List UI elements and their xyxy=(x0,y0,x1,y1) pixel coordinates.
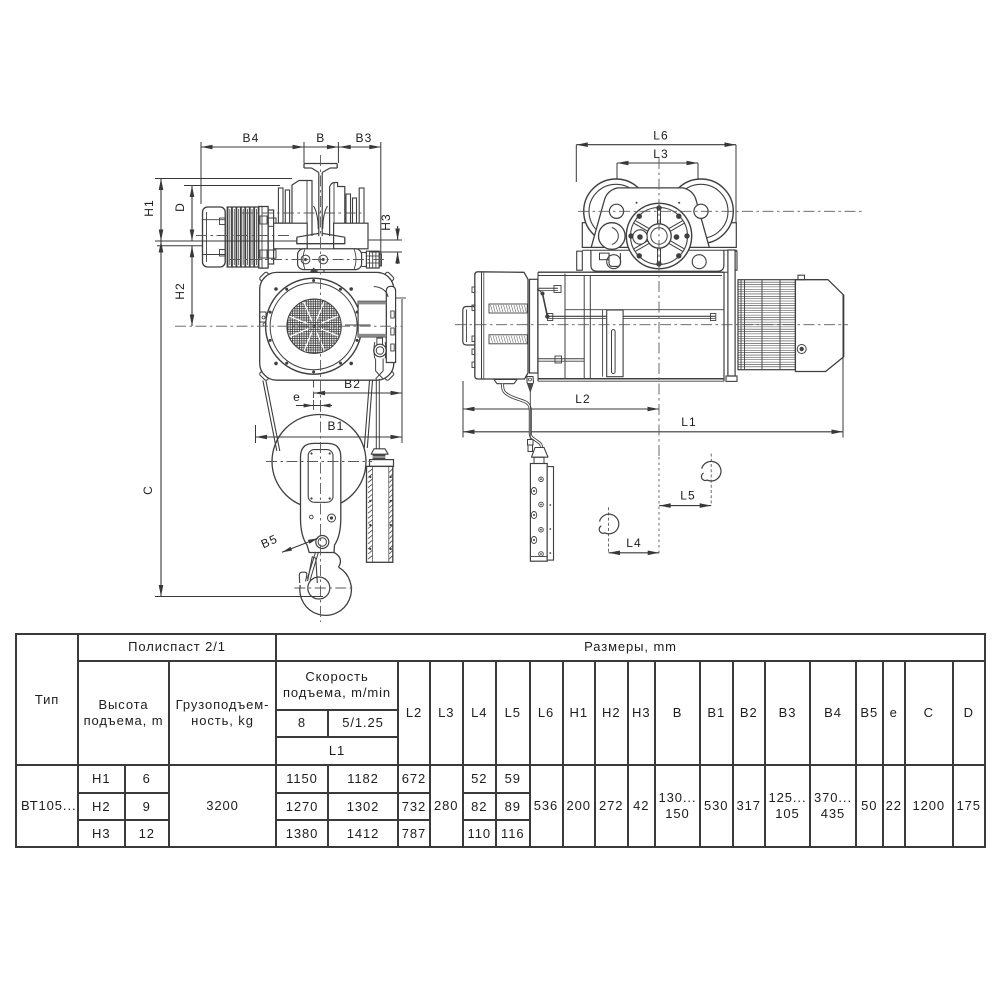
svg-text:B2: B2 xyxy=(344,377,361,391)
svg-text:B4: B4 xyxy=(243,131,260,145)
svg-text:L5: L5 xyxy=(680,489,696,503)
svg-text:D: D xyxy=(173,202,187,212)
svg-text:L1: L1 xyxy=(681,415,697,429)
svg-text:H1: H1 xyxy=(142,199,156,217)
svg-text:L2: L2 xyxy=(575,392,591,406)
svg-text:e: e xyxy=(293,390,301,404)
svg-text:L4: L4 xyxy=(626,536,642,550)
svg-text:B3: B3 xyxy=(356,131,373,145)
svg-text:H2: H2 xyxy=(173,282,187,300)
svg-text:H3: H3 xyxy=(379,213,393,231)
svg-text:B5: B5 xyxy=(259,532,280,552)
svg-text:B: B xyxy=(316,131,325,145)
svg-text:B1: B1 xyxy=(328,419,345,433)
svg-text:L6: L6 xyxy=(653,129,669,143)
svg-text:L3: L3 xyxy=(653,147,669,161)
svg-text:C: C xyxy=(141,485,155,495)
